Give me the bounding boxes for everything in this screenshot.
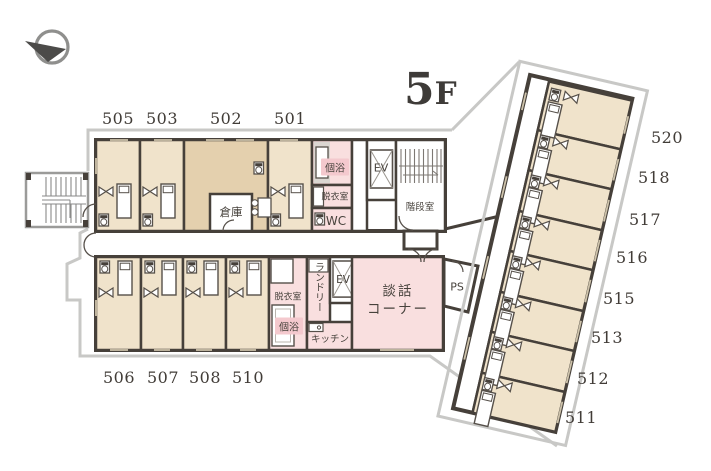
changing-bottom-label: 脱衣室	[274, 290, 301, 303]
room-label-512: 512	[577, 369, 609, 388]
bath-bottom-label: 個浴	[275, 318, 303, 335]
wc-label: WC	[326, 214, 346, 228]
room-label-503: 503	[146, 109, 178, 128]
laundry-label: ランドリー	[311, 262, 326, 312]
room-label-511: 511	[565, 408, 597, 427]
room-label-510: 510	[232, 368, 264, 387]
floor-number: 5	[404, 64, 435, 115]
room-label-515: 515	[603, 289, 635, 308]
room-label-513: 513	[591, 328, 623, 347]
exterior-stairs	[26, 173, 88, 227]
top-room-band	[96, 140, 445, 231]
room-label-516: 516	[616, 248, 648, 267]
storage-label: 倉庫	[220, 204, 243, 220]
lounge-label: 談話 コーナー	[367, 283, 429, 318]
elevator-bottom-label: EV	[336, 274, 350, 286]
floor-indicator: 5F	[404, 64, 457, 115]
room-label-517: 517	[629, 210, 661, 229]
pipe-space-label: PS	[450, 281, 464, 294]
changing-top-label: 脱衣室	[321, 190, 348, 203]
kitchen-label: キッチン	[311, 331, 349, 345]
room-label-507: 507	[147, 368, 179, 387]
stairwell-shape	[396, 140, 445, 231]
floorplan-5f: 5F 505 503 502 501 506 507 508 510 520 5…	[0, 0, 711, 471]
room-label-502: 502	[210, 109, 242, 128]
room-label-518: 518	[638, 168, 670, 187]
bath-top-label: 個浴	[321, 159, 349, 176]
room-label-508: 508	[189, 368, 221, 387]
room-label-506: 506	[103, 368, 135, 387]
room-label-520: 520	[651, 128, 683, 147]
floor-suffix: F	[435, 76, 457, 112]
elevator-top-label: EV	[374, 162, 388, 175]
room-label-505: 505	[102, 109, 134, 128]
stairwell-label: 階段室	[406, 199, 435, 213]
room-label-501: 501	[274, 109, 306, 128]
floorplan-drawing	[0, 0, 711, 471]
compass-north-icon	[25, 31, 68, 63]
